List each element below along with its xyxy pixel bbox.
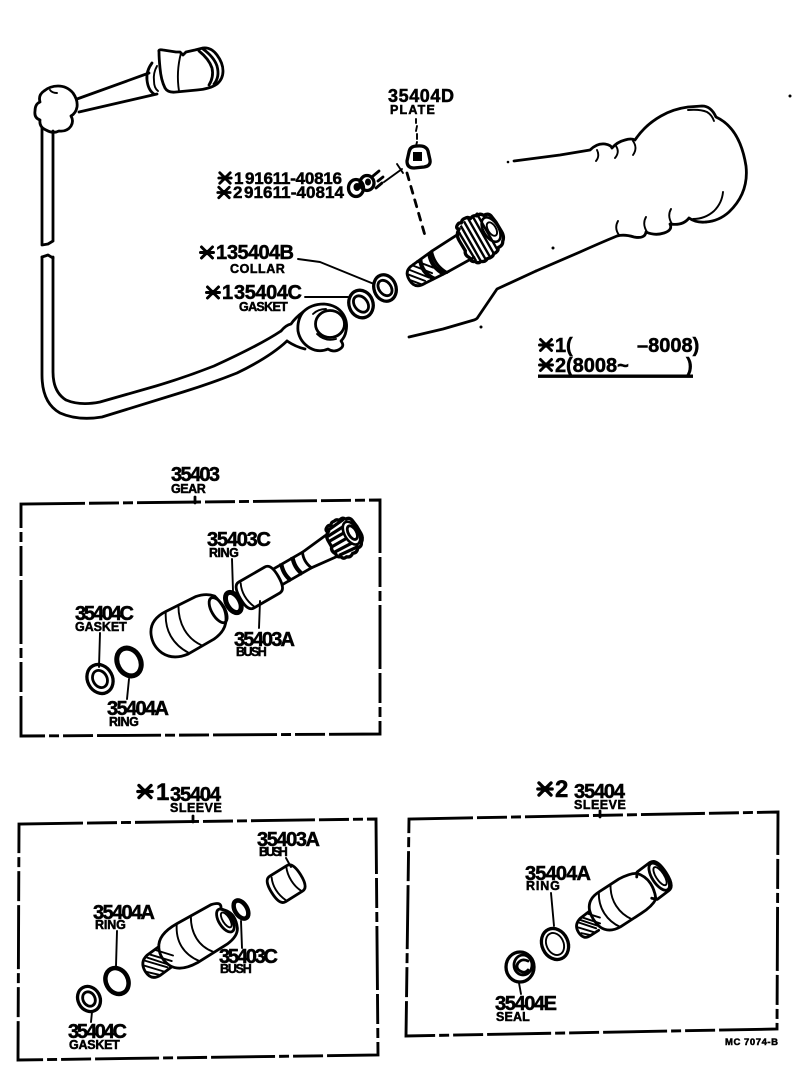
svg-text:1: 1 <box>156 779 169 806</box>
svg-text:GASKET: GASKET <box>75 620 128 634</box>
svg-text:–8008): –8008) <box>637 335 699 357</box>
svg-text:2: 2 <box>233 183 242 202</box>
svg-text:BUSH: BUSH <box>259 845 289 859</box>
svg-text:RING: RING <box>109 715 140 729</box>
svg-text:(: ( <box>566 335 573 357</box>
svg-text:GASKET: GASKET <box>69 1038 121 1052</box>
svg-text:91611-40814: 91611-40814 <box>244 183 345 202</box>
svg-text:): ) <box>686 355 693 377</box>
svg-text:1: 1 <box>216 242 227 264</box>
svg-text:PLATE: PLATE <box>390 103 436 117</box>
svg-text:BUSH: BUSH <box>220 962 253 976</box>
svg-text:(8008~: (8008~ <box>566 355 629 377</box>
svg-text:GEAR: GEAR <box>171 482 207 496</box>
svg-text:1: 1 <box>222 282 233 304</box>
svg-text:2: 2 <box>555 776 568 803</box>
svg-text:BUSH: BUSH <box>236 645 268 659</box>
svg-text:RING: RING <box>526 879 561 893</box>
svg-text:SLEEVE: SLEEVE <box>170 801 223 815</box>
svg-text:2: 2 <box>555 355 566 377</box>
svg-text:COLLAR: COLLAR <box>230 262 286 276</box>
svg-text:MC 7074-B: MC 7074-B <box>725 1037 778 1048</box>
svg-text:SEAL: SEAL <box>496 1010 531 1024</box>
svg-text:35404B: 35404B <box>227 242 294 264</box>
svg-text:GASKET: GASKET <box>239 300 289 314</box>
svg-text:RING: RING <box>95 918 127 932</box>
svg-text:RING: RING <box>209 546 240 560</box>
svg-text:1: 1 <box>555 335 566 357</box>
